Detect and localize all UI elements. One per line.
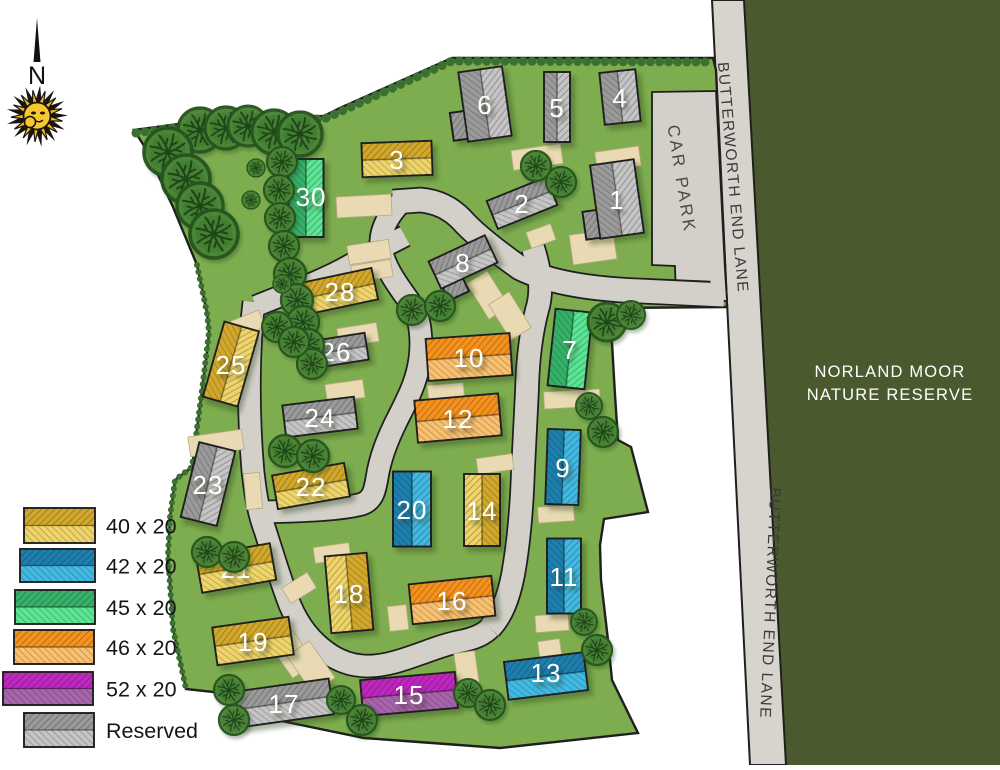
svg-text:23: 23 <box>193 470 224 500</box>
svg-text:22: 22 <box>296 472 327 502</box>
svg-text:Reserved: Reserved <box>106 719 198 743</box>
svg-text:NATURE RESERVE: NATURE RESERVE <box>807 386 974 404</box>
svg-text:30: 30 <box>296 182 327 212</box>
svg-text:NORLAND MOOR: NORLAND MOOR <box>815 363 966 381</box>
svg-text:N: N <box>28 62 46 90</box>
svg-text:12: 12 <box>443 404 474 434</box>
svg-text:15: 15 <box>394 680 425 710</box>
svg-text:20: 20 <box>397 495 428 525</box>
svg-text:28: 28 <box>325 277 356 307</box>
svg-text:6: 6 <box>477 90 492 120</box>
svg-text:11: 11 <box>550 562 579 592</box>
svg-text:1: 1 <box>609 185 624 215</box>
svg-text:25: 25 <box>216 350 247 380</box>
svg-text:16: 16 <box>437 586 468 616</box>
svg-text:5: 5 <box>549 93 564 123</box>
svg-text:10: 10 <box>454 343 485 373</box>
svg-text:52 x 20: 52 x 20 <box>106 678 177 702</box>
svg-text:19: 19 <box>238 627 269 657</box>
svg-text:45 x 20: 45 x 20 <box>106 596 177 620</box>
svg-text:4: 4 <box>612 83 627 113</box>
svg-text:3: 3 <box>389 145 404 175</box>
svg-text:13: 13 <box>531 658 562 688</box>
svg-text:24: 24 <box>305 403 336 433</box>
svg-text:42 x 20: 42 x 20 <box>106 555 177 579</box>
svg-text:14: 14 <box>467 496 498 526</box>
svg-text:2: 2 <box>514 189 529 219</box>
svg-text:40 x 20: 40 x 20 <box>106 515 177 539</box>
svg-text:8: 8 <box>455 248 470 278</box>
svg-text:7: 7 <box>562 335 577 365</box>
svg-text:17: 17 <box>269 689 300 719</box>
svg-text:46 x 20: 46 x 20 <box>106 636 177 660</box>
svg-text:9: 9 <box>555 453 570 483</box>
svg-text:18: 18 <box>334 579 365 609</box>
